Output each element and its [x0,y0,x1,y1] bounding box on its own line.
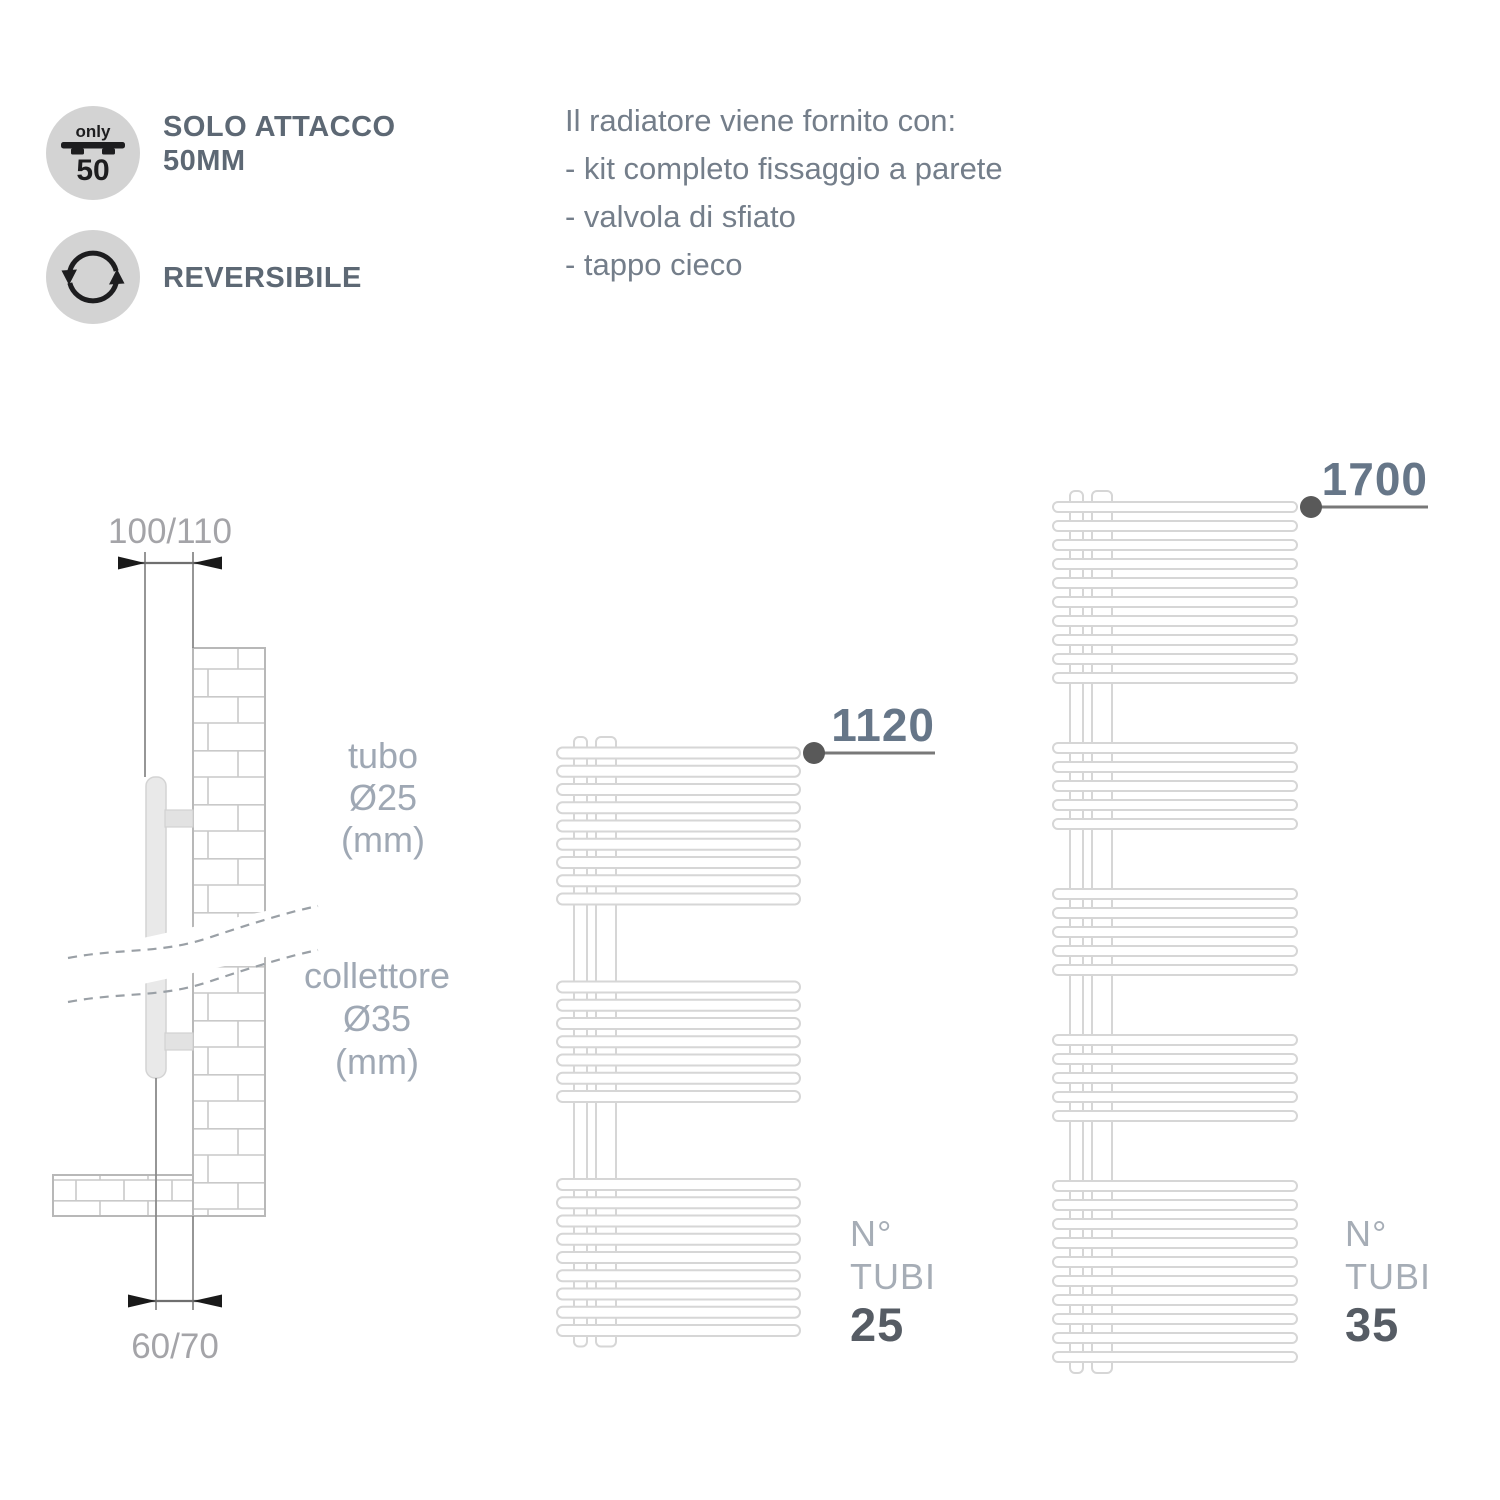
tube-pill [1053,1314,1297,1324]
count-label-tubi: TUBI [1345,1255,1485,1298]
tube-pill [1053,502,1297,512]
supply-item: - tappo cieco [565,241,1003,289]
tube-pill [1053,1352,1297,1362]
reversible-arrows-icon [46,230,140,324]
tube-pill [557,839,800,850]
feature-label-line2: 50MM [163,144,396,178]
tube-pill [1053,1257,1297,1267]
cycle-bottom-half [70,269,125,301]
icon-50-text: 50 [76,156,109,186]
tube-pill [557,1307,800,1318]
count-label-no: N° [850,1212,990,1255]
tube-pill [1053,1111,1297,1121]
height-callout-dot [803,742,825,764]
tube-pill [1053,1181,1297,1191]
tube-pill [1053,673,1297,683]
tube-pill [557,1055,800,1066]
cycle-arc-top [70,253,116,271]
height-callout-dot [1300,496,1322,518]
tube-pill [1053,743,1297,753]
tube-pill [1053,800,1297,810]
tube-pill [1053,1276,1297,1286]
tube-count-block-1120: N° TUBI 25 [850,1212,990,1352]
tube-label-line: tubo [348,735,418,776]
side-view-drawing: 100/110 60/70 tubo Ø25 (mm) collettore Ø… [40,480,510,1380]
count-value: 35 [1345,1298,1485,1352]
tube-label-line: (mm) [341,819,425,860]
tube-pill [1053,1238,1297,1248]
tube-pill [1053,889,1297,899]
collector-label-line: (mm) [335,1041,419,1082]
tube-pill [1053,946,1297,956]
tube-pill [557,802,800,813]
tube-pill [557,1018,800,1029]
tube-pill [557,766,800,777]
radiator-tube-side [146,777,166,1078]
wall-bracket-lower [165,1033,193,1050]
tube-pill [1053,578,1297,588]
tube-pill [557,857,800,868]
tube-pill [557,1036,800,1047]
tube-pill [557,1216,800,1227]
tube-pill [557,1091,800,1102]
tube-pill [557,1000,800,1011]
count-label-no: N° [1345,1212,1485,1255]
feature-label-solo-attacco: SOLO ATTACCO 50MM [163,110,396,178]
collector-label-line: Ø35 [343,998,411,1039]
tube-pill [1053,762,1297,772]
tube-pill [557,748,800,759]
tube-pill [557,982,800,993]
supply-item: - kit completo fissaggio a parete [565,145,1003,193]
bracket-bar [61,142,125,149]
tube-pill [1053,819,1297,829]
tube-pill [557,1197,800,1208]
tube-pill [1053,616,1297,626]
tube-pill [1053,597,1297,607]
supply-info: Il radiatore viene fornito con: - kit co… [565,97,1003,289]
tube-pill [557,1270,800,1281]
supply-title: Il radiatore viene fornito con: [565,97,1003,145]
tube-pill [1053,1295,1297,1305]
tube-pill [557,821,800,832]
tube-pill [1053,927,1297,937]
dim-value-top: 100/110 [108,512,232,551]
cycle-arrowhead-right [109,269,125,285]
tube-pill [1053,1054,1297,1064]
tube-pill [1053,1092,1297,1102]
cycle-arrowhead-left [62,270,78,286]
wall-bracket-upper [165,810,193,827]
count-label-tubi: TUBI [850,1255,990,1298]
tube-pill [557,1252,800,1263]
tube-label-line: Ø25 [349,777,417,818]
dim-arrow-left [118,557,145,570]
tube-pill [1053,521,1297,531]
tube-pill [557,1073,800,1084]
floor-section [53,1175,193,1216]
dim-value-bottom: 60/70 [131,1327,219,1366]
tube-pill [557,1325,800,1336]
cycle-arc-bottom [70,283,116,301]
tube-pill [1053,1200,1297,1210]
collector-label-line: collettore [304,955,450,996]
tube-pill [1053,1333,1297,1343]
tube-pill [1053,908,1297,918]
tube-pill [1053,540,1297,550]
feature-label-line1: REVERSIBILE [163,261,362,295]
dim-arrow-right [193,1295,222,1308]
tube-pill [557,875,800,886]
dim-arrow-left [128,1295,156,1308]
feature-label-line1: SOLO ATTACCO [163,110,396,144]
supply-item: - valvola di sfiato [565,193,1003,241]
cycle-arrows-glyph [59,243,127,311]
radiator-spec-sheet: only 50 SOLO ATTACCO 50MM REVERSIBILE Il… [0,0,1500,1500]
tube-pill [1053,635,1297,645]
tube-count-block-1700: N° TUBI 35 [1345,1212,1485,1352]
tube-pill [1053,965,1297,975]
tube-pill [557,1234,800,1245]
tube-pill [1053,1073,1297,1083]
tube-pill [1053,654,1297,664]
height-value: 1700 [1322,453,1428,505]
tube-pill [557,1289,800,1300]
tube-pill [1053,781,1297,791]
icon-only-text: only [76,123,111,140]
tube-pill [1053,1035,1297,1045]
tube-pill [557,894,800,905]
tube-pill [1053,1219,1297,1229]
height-value: 1120 [831,699,935,751]
feature-label-reversibile: REVERSIBILE [163,261,362,295]
count-value: 25 [850,1298,990,1352]
tube-pill [557,784,800,795]
only-50-bracket-icon: only 50 [46,106,140,200]
dim-arrow-right [193,557,222,570]
tube-pill [1053,559,1297,569]
tube-pill [557,1179,800,1190]
